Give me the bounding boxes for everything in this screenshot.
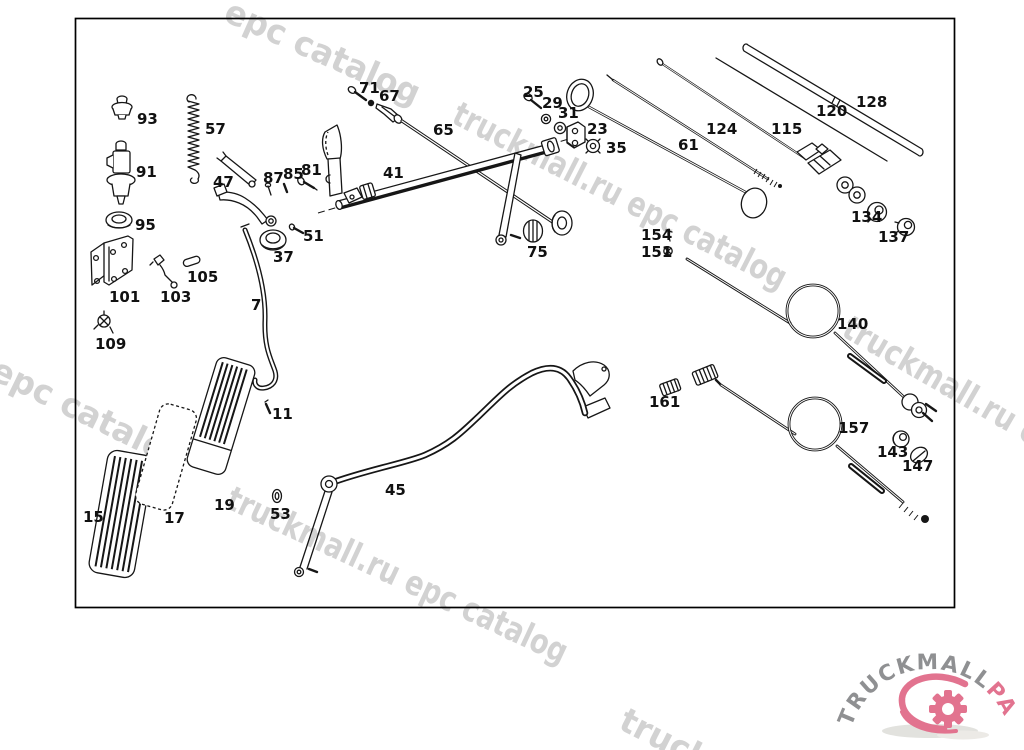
part-109-drawing (94, 311, 113, 333)
part-label-25: 25 (523, 83, 544, 101)
part-label-95: 95 (135, 216, 156, 234)
part-label-151: 151 (641, 243, 672, 261)
part-105-drawing (182, 255, 200, 267)
part-label-128: 128 (856, 93, 887, 111)
part-101-drawing (91, 236, 133, 285)
part-label-41: 41 (383, 164, 404, 182)
part-label-61: 61 (678, 136, 699, 154)
part-53-drawing (273, 490, 282, 503)
part-95-drawing (106, 212, 132, 228)
part-label-19: 19 (214, 496, 235, 514)
part-label-147: 147 (902, 457, 933, 475)
part-label-91: 91 (136, 163, 157, 181)
part-31-drawing (554, 122, 565, 133)
part-label-71: 71 (359, 79, 380, 97)
part-85-drawing (284, 184, 287, 192)
part-label-75: 75 (527, 243, 548, 261)
part-label-37: 37 (273, 248, 294, 266)
part-label-51: 51 (303, 227, 324, 245)
exploded-parts-diagram: epc catalogtruckmall.ru epc catalogll.ru… (0, 0, 1024, 750)
bell-crank-drawing (323, 125, 342, 196)
part-35-drawing (586, 139, 600, 153)
part-label-53: 53 (270, 505, 291, 523)
part-label-105: 105 (187, 268, 218, 286)
part-label-109: 109 (95, 335, 126, 353)
cable-157-end-clip (692, 364, 721, 386)
part-label-103: 103 (160, 288, 191, 306)
part-115-drawing (656, 58, 865, 203)
part-label-157: 157 (838, 419, 869, 437)
part-label-67: 67 (379, 87, 400, 105)
part-label-120: 120 (816, 102, 847, 120)
part-label-87: 87 (263, 169, 284, 187)
part-label-134: 134 (851, 208, 882, 226)
part-label-15: 15 (83, 508, 104, 526)
part-label-11: 11 (272, 405, 293, 423)
part-11-drawing (265, 400, 270, 413)
part-label-45: 45 (385, 481, 406, 499)
part-label-137: 137 (878, 228, 909, 246)
part-label-23: 23 (587, 120, 608, 138)
part-label-7: 7 (251, 296, 261, 314)
part-label-47: 47 (213, 173, 234, 191)
part-91-drawing (107, 141, 135, 204)
part-label-17: 17 (164, 509, 185, 527)
part-label-93: 93 (137, 110, 158, 128)
part-label-31: 31 (558, 104, 579, 122)
part-75-drawing (524, 211, 573, 242)
part-label-154: 154 (641, 226, 672, 244)
part-29-drawing (541, 114, 550, 123)
watermark-text-5: truckmall (613, 700, 787, 750)
part-label-81: 81 (301, 161, 322, 179)
part-label-101: 101 (109, 288, 140, 306)
part-label-65: 65 (433, 121, 454, 139)
gear-icon (929, 690, 967, 728)
part-93-drawing (112, 96, 132, 119)
part-label-115: 115 (771, 120, 802, 138)
part-51-drawing (288, 223, 303, 233)
parts-catalog-page: epc catalogtruckmall.ru epc catalogll.ru… (0, 0, 1024, 750)
part-103-drawing (150, 255, 177, 288)
part-label-140: 140 (837, 315, 868, 333)
part-label-161: 161 (649, 393, 680, 411)
part-label-124: 124 (706, 120, 737, 138)
part-128-drawing (743, 44, 923, 156)
part-23-drawing (567, 122, 585, 148)
part-label-57: 57 (205, 120, 226, 138)
part-57-drawing (187, 95, 199, 184)
part-label-35: 35 (606, 139, 627, 157)
part-37-drawing (260, 230, 286, 250)
